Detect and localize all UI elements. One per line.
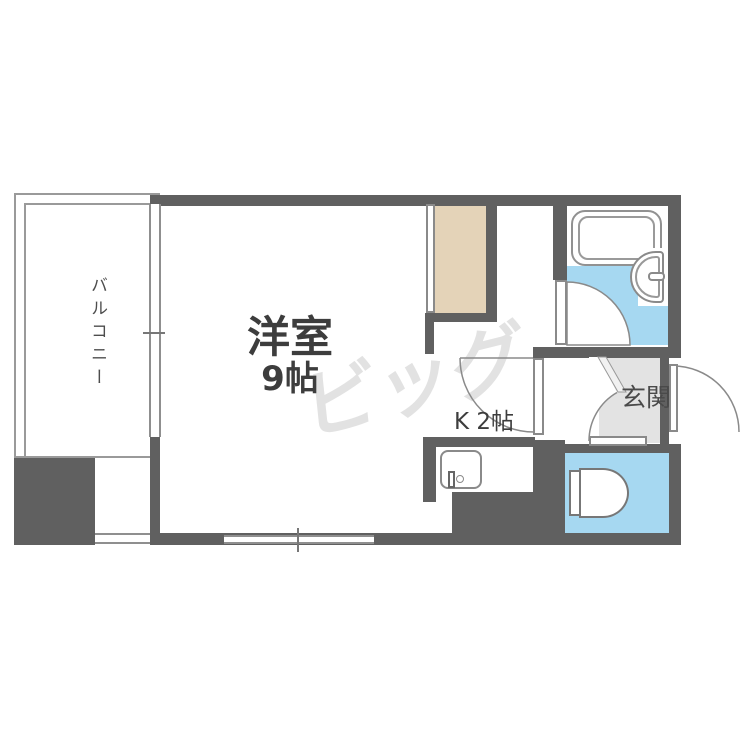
living-room-size: 9帖 (200, 361, 380, 398)
toilet-bowl (579, 468, 629, 518)
wash-basin-faucet (648, 272, 665, 281)
kitchen-label: K 2帖 (428, 402, 540, 436)
bathroom-door-panel (555, 280, 567, 345)
entrance-label: 玄関 (621, 378, 671, 414)
closet-sliding-door (426, 204, 435, 313)
kitchen-sink-drain (456, 475, 464, 483)
kitchen-faucet (448, 471, 455, 488)
floor-plan: ビッグ (0, 0, 750, 750)
toilet-door-panel (589, 436, 647, 446)
bathroom-door-swing-arc (567, 282, 630, 345)
living-room-name: 洋室 (200, 316, 380, 361)
entrance-door-swing-arc (673, 366, 739, 432)
balcony-label: バルコニー (62, 258, 110, 408)
kitchen-sink (440, 450, 482, 489)
living-room-label: 洋室 9帖 (200, 316, 380, 399)
